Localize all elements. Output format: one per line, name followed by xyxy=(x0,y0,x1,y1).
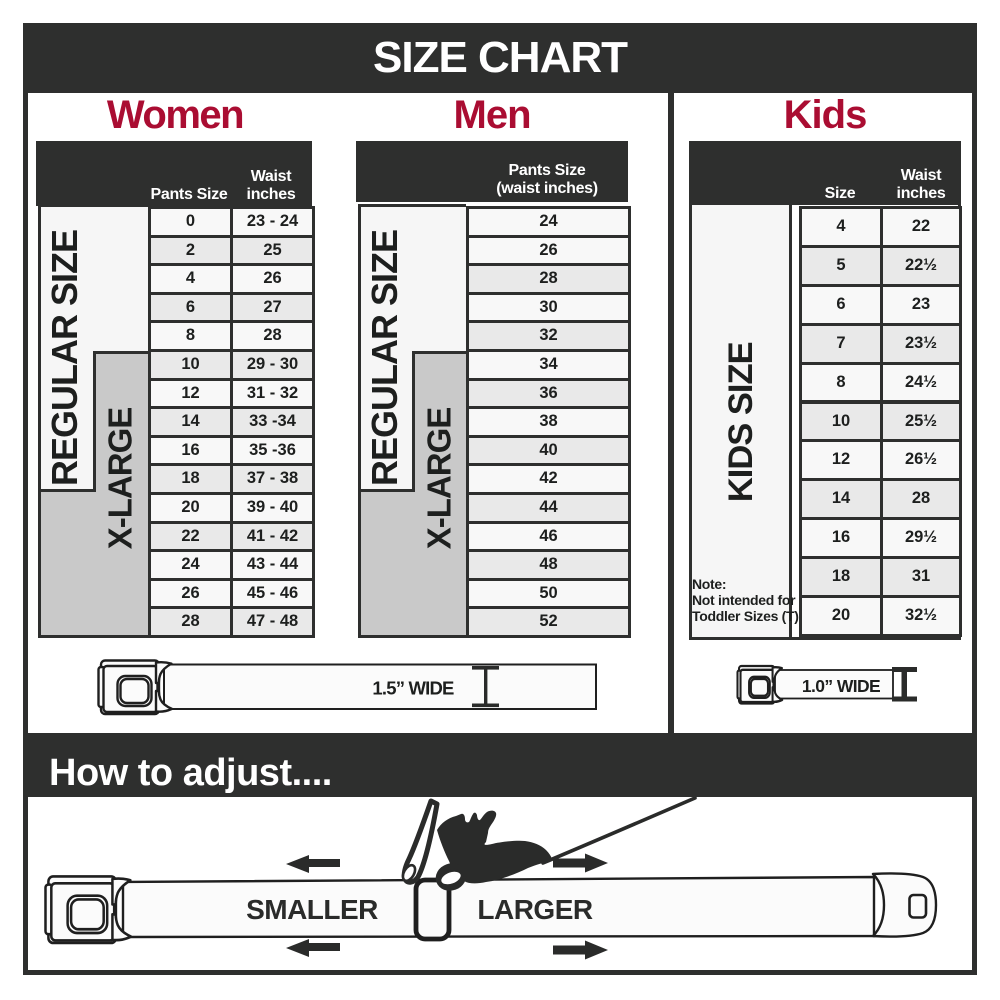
svg-text:LARGER: LARGER xyxy=(477,894,593,925)
svg-text:SMALLER: SMALLER xyxy=(246,894,378,925)
svg-text:1.5” WIDE: 1.5” WIDE xyxy=(372,678,454,699)
svg-text:1.0” WIDE: 1.0” WIDE xyxy=(802,676,880,696)
